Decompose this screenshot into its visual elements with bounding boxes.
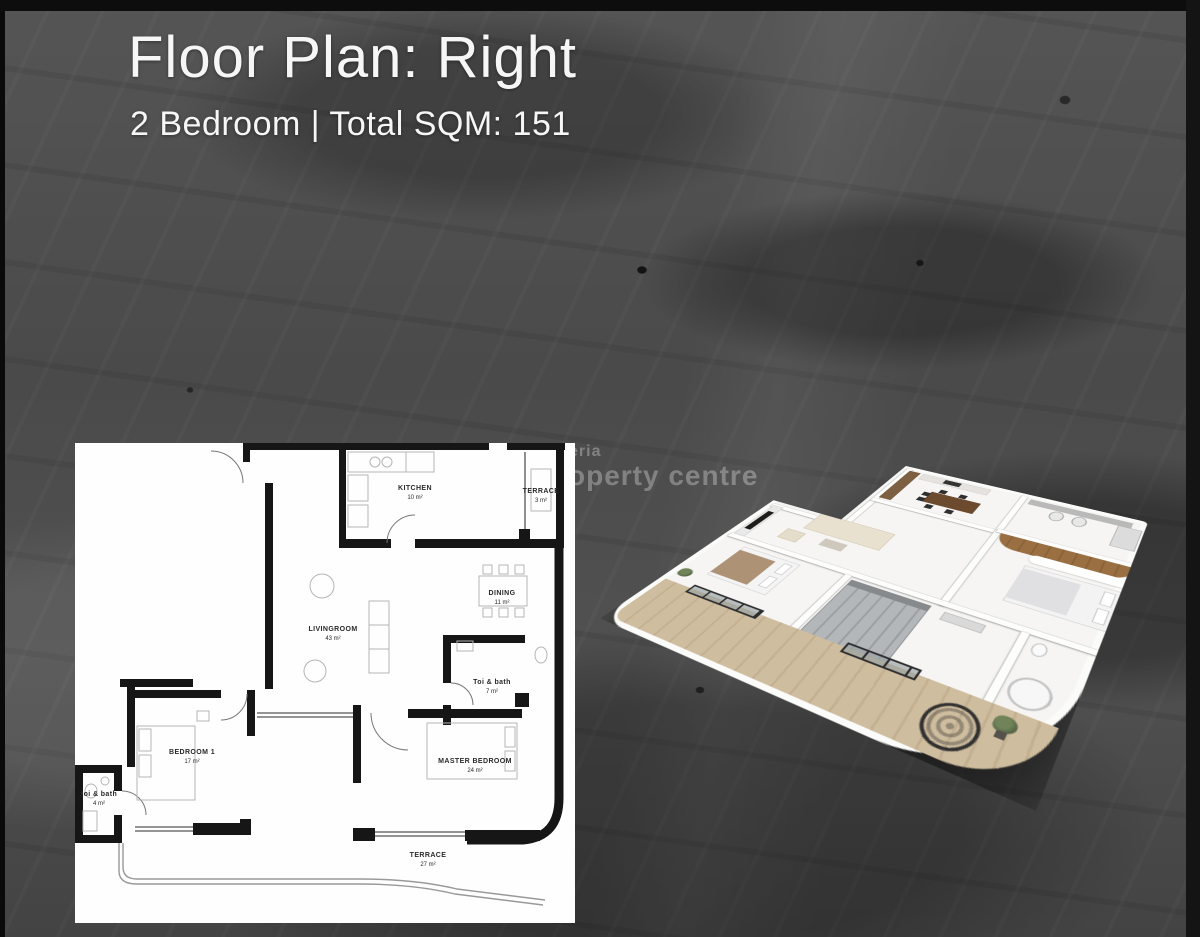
room-label: TERRACE <box>410 852 447 859</box>
top-edge-strip <box>0 0 1200 11</box>
floor-plan-2d-panel: KITCHEN 10 m² TERRACE 3 m² DINING 11 m² … <box>75 443 575 923</box>
room-label: toi & bath <box>81 791 117 798</box>
door-arcs <box>122 451 473 815</box>
room-area: 7 m² <box>486 689 498 695</box>
windows <box>135 452 525 836</box>
room-label: KITCHEN <box>398 485 432 492</box>
room-area: 43 m² <box>325 636 340 642</box>
room-area: 17 m² <box>184 759 199 765</box>
header: Floor Plan: Right 2 Bedroom | Total SQM:… <box>128 24 577 144</box>
walls <box>75 443 565 843</box>
room-area: 27 m² <box>420 862 435 868</box>
room-area: 3 m² <box>535 498 547 504</box>
room-area: 4 m² <box>93 801 105 807</box>
room-area: 11 m² <box>495 600 510 606</box>
room-label: BEDROOM 1 <box>169 749 215 756</box>
room-area: 24 m² <box>467 768 482 774</box>
floor-plan-2d-drawing: KITCHEN 10 m² TERRACE 3 m² DINING 11 m² … <box>75 443 575 923</box>
terrace-boundary <box>119 843 545 905</box>
room-label: Toi & bath <box>473 679 511 686</box>
page-subtitle: 2 Bedroom | Total SQM: 151 <box>130 105 577 144</box>
room-label: LIVINGROOM <box>308 626 357 633</box>
room-label: DINING <box>489 590 516 597</box>
room-label: TERRACE <box>523 488 560 495</box>
page-title: Floor Plan: Right <box>128 24 577 91</box>
right-edge-strip <box>1186 0 1200 937</box>
left-edge-strip <box>0 0 5 937</box>
room-label: MASTER BEDROOM <box>438 758 512 765</box>
room-area: 10 m² <box>407 495 422 501</box>
